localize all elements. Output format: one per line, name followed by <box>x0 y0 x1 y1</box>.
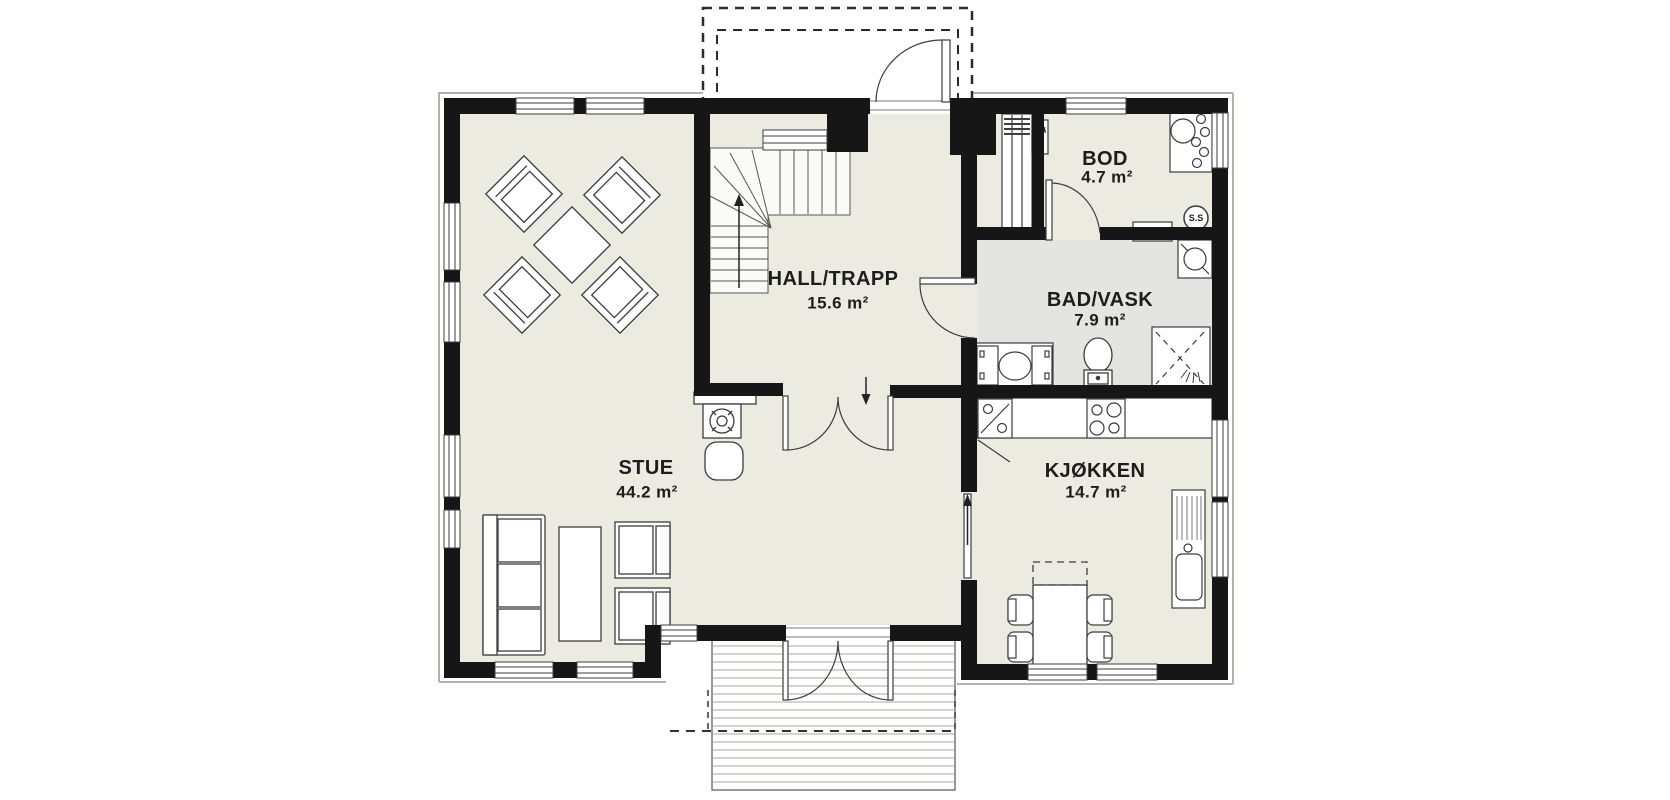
dining-chair <box>1087 595 1112 625</box>
window <box>1097 664 1157 680</box>
wall-bod-south-right <box>1100 227 1212 240</box>
dining-chair <box>1087 632 1112 662</box>
wall-bod-west <box>1032 114 1044 227</box>
wall-hall-bath-upper <box>961 155 977 284</box>
cooktop <box>1087 399 1125 438</box>
central-vacuum-outlet <box>1184 206 1208 230</box>
wall-west <box>444 98 460 678</box>
window <box>444 435 460 497</box>
kitchen-sliding-door <box>961 492 977 580</box>
ventilation-shaft <box>1002 114 1032 228</box>
shower <box>1152 327 1210 389</box>
terrace-deck <box>670 622 955 790</box>
wall-stair-niche-jog <box>827 114 868 152</box>
wall-south-kitchen <box>961 664 1228 680</box>
window-stair-niche <box>763 130 827 150</box>
wall-kitchen-west-upper <box>961 398 977 492</box>
floor-plan-drawing <box>0 0 1670 800</box>
window <box>586 98 644 114</box>
window <box>495 662 553 678</box>
window <box>444 203 460 270</box>
wall-entry-block <box>950 98 996 155</box>
wall-bod-south-left <box>977 227 1050 240</box>
wall-bath-south <box>890 385 1212 398</box>
dining-chair <box>1008 595 1033 625</box>
armchair <box>615 522 670 578</box>
sofa <box>483 515 545 655</box>
wall-stub-stove <box>694 383 783 396</box>
washbasin-counter <box>975 343 1053 388</box>
entrance-porch <box>703 8 972 100</box>
coffee-table <box>559 527 601 641</box>
wall-stue-hall <box>694 114 710 383</box>
window <box>1212 502 1228 577</box>
wall-east <box>1212 98 1228 680</box>
window <box>444 282 460 342</box>
toilet <box>1084 338 1112 387</box>
fan-cabinet <box>1178 240 1212 278</box>
kitchen-sink <box>1172 490 1205 608</box>
window <box>1066 98 1126 114</box>
wall-kitchen-west-lower <box>961 580 977 680</box>
dining-chair <box>1008 632 1033 662</box>
window <box>444 510 460 548</box>
window <box>661 625 697 641</box>
window <box>1212 420 1228 497</box>
utility-sink <box>1170 110 1212 172</box>
window <box>1028 664 1087 680</box>
window <box>1212 113 1228 168</box>
window <box>516 98 574 114</box>
window <box>577 662 633 678</box>
floor-plan: STUE 44.2 m² HALL/TRAPP 15.6 m² BOD 4.7 … <box>0 0 1670 800</box>
